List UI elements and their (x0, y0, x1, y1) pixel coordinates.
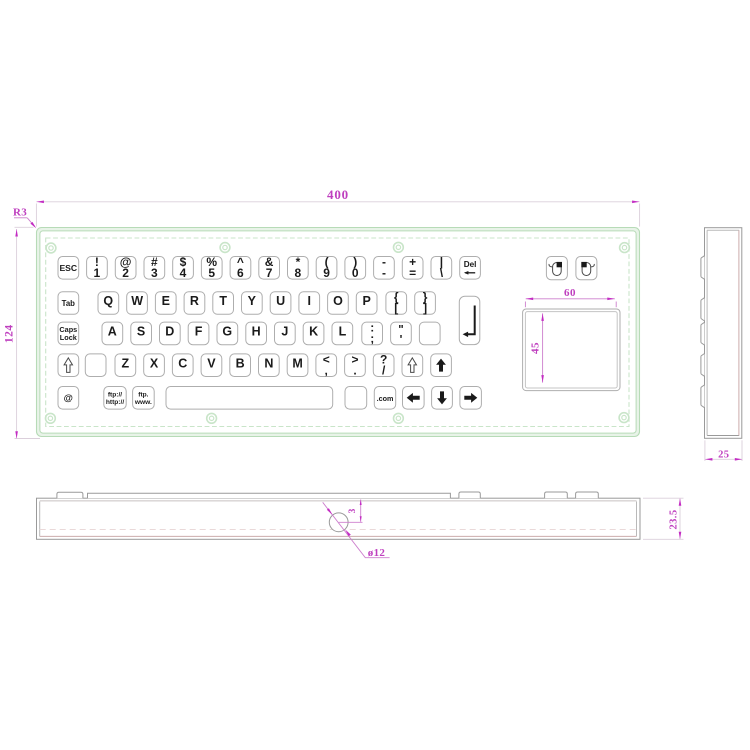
svg-text:0: 0 (352, 266, 359, 280)
svg-text:@: @ (64, 393, 73, 404)
svg-text:5: 5 (208, 266, 215, 280)
svg-text:-: - (382, 266, 386, 280)
svg-text:': ' (400, 335, 403, 347)
svg-text:M: M (292, 356, 302, 370)
svg-text:ftp.: ftp. (138, 391, 148, 398)
svg-text:E: E (162, 294, 170, 308)
svg-text:8: 8 (295, 266, 302, 280)
svg-text:400: 400 (327, 187, 349, 202)
svg-text:www.: www. (134, 399, 152, 406)
svg-text:2: 2 (122, 266, 129, 280)
svg-text:C: C (178, 356, 187, 370)
svg-text:Del: Del (464, 260, 477, 269)
svg-text:Z: Z (121, 356, 129, 370)
svg-text:4: 4 (180, 266, 187, 280)
svg-text:J: J (281, 325, 288, 339)
svg-text:D: D (165, 325, 174, 339)
svg-text:45: 45 (530, 342, 542, 354)
svg-text:H: H (252, 325, 261, 339)
svg-text:25: 25 (718, 450, 729, 461)
svg-text:F: F (195, 325, 203, 339)
svg-text:6: 6 (237, 266, 244, 280)
svg-text:3: 3 (348, 508, 358, 513)
svg-text:[: [ (394, 301, 398, 315)
svg-text:ESC: ESC (59, 263, 77, 273)
svg-text:http://: http:// (106, 399, 124, 406)
svg-text:O: O (333, 294, 343, 308)
svg-text:.: . (353, 363, 356, 377)
svg-text:ø12: ø12 (368, 547, 386, 559)
svg-text:P: P (363, 294, 371, 308)
svg-text:R: R (190, 294, 199, 308)
svg-text:.com: .com (377, 394, 394, 403)
svg-text:Y: Y (248, 294, 257, 308)
svg-text:ftp://: ftp:// (108, 391, 122, 398)
svg-text:60: 60 (564, 287, 576, 299)
svg-text:W: W (131, 294, 143, 308)
svg-text:X: X (150, 356, 159, 370)
svg-text:A: A (108, 325, 117, 339)
svg-text:I: I (307, 294, 310, 308)
svg-text:9: 9 (323, 266, 330, 280)
svg-text:]: ] (423, 301, 427, 315)
svg-text:U: U (276, 294, 285, 308)
svg-text:B: B (236, 356, 245, 370)
svg-text:;: ; (370, 332, 374, 346)
svg-text:K: K (309, 325, 318, 339)
svg-text:R3: R3 (13, 207, 27, 219)
svg-text:V: V (207, 356, 216, 370)
svg-text:T: T (219, 294, 227, 308)
svg-text:G: G (222, 325, 232, 339)
svg-text:L: L (339, 325, 347, 339)
svg-text:S: S (137, 325, 145, 339)
svg-text:,: , (325, 363, 328, 377)
svg-text:=: = (409, 266, 416, 280)
svg-text:7: 7 (266, 266, 273, 280)
svg-text:Tab: Tab (62, 299, 76, 308)
svg-text:124: 124 (3, 324, 15, 343)
svg-text:Lock: Lock (60, 333, 78, 342)
svg-text:1: 1 (94, 266, 101, 280)
svg-text:Q: Q (103, 294, 113, 308)
svg-text:N: N (264, 356, 273, 370)
svg-text:3: 3 (151, 266, 158, 280)
svg-text:23.5: 23.5 (668, 510, 679, 530)
